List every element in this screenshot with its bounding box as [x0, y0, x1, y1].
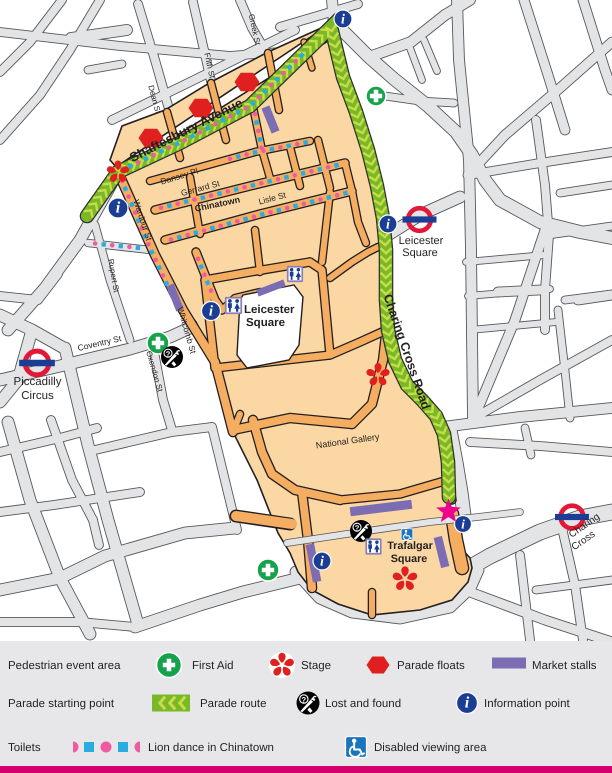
svg-text:Information point: Information point: [484, 698, 570, 710]
svg-text:Pedestrian event area: Pedestrian event area: [8, 660, 121, 672]
svg-text:i: i: [465, 695, 470, 712]
svg-text:Disabled viewing area: Disabled viewing area: [374, 742, 487, 754]
svg-text:i: i: [341, 13, 345, 28]
svg-text:Lion dance in Chinatown: Lion dance in Chinatown: [148, 742, 274, 754]
svg-text:Circus: Circus: [21, 390, 54, 402]
svg-text:Leicester: Leicester: [244, 304, 295, 316]
svg-text:Toilets: Toilets: [8, 742, 41, 754]
svg-text:Leicester: Leicester: [399, 235, 444, 247]
svg-text:Square: Square: [391, 553, 428, 565]
svg-text:Square: Square: [402, 247, 437, 259]
svg-text:Stage: Stage: [301, 660, 331, 672]
svg-text:i: i: [116, 200, 121, 217]
svg-text:Square: Square: [246, 317, 285, 329]
svg-text:Parade route: Parade route: [200, 698, 267, 710]
svg-text:?: ?: [166, 349, 171, 358]
svg-text:Lost and found: Lost and found: [325, 698, 401, 710]
svg-text:Market stalls: Market stalls: [532, 660, 597, 672]
svg-text:i: i: [461, 517, 465, 532]
svg-text:Parade floats: Parade floats: [397, 660, 465, 672]
svg-text:Trafalgar: Trafalgar: [387, 540, 433, 552]
svg-text:Parade starting point: Parade starting point: [8, 698, 115, 710]
svg-text:?: ?: [355, 523, 360, 532]
svg-text:i: i: [320, 555, 324, 570]
svg-text:i: i: [386, 218, 390, 233]
svg-text:First Aid: First Aid: [192, 660, 234, 672]
svg-text:?: ?: [301, 695, 306, 704]
svg-text:Piccadilly: Piccadilly: [14, 376, 62, 388]
